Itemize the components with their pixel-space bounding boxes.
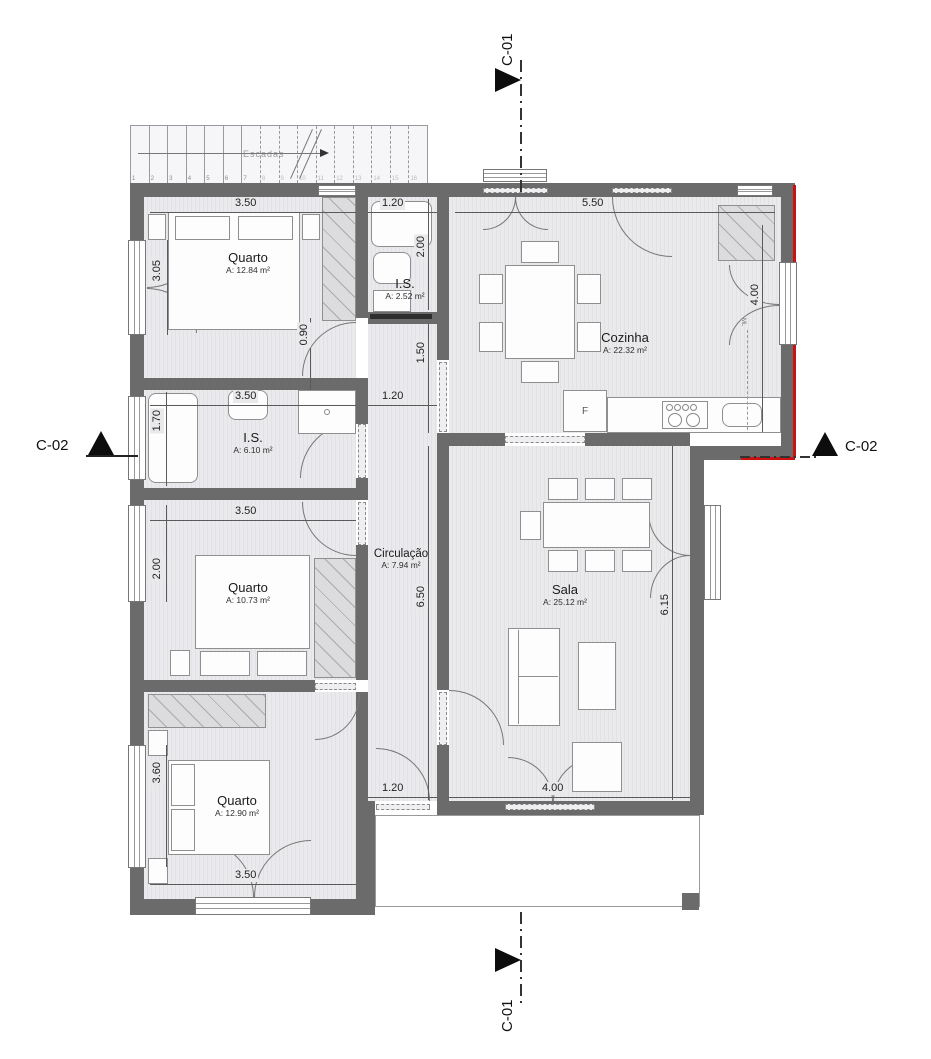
label-quarto2: Quarto A: 10.73 m²: [188, 580, 308, 605]
room-name: Cozinha: [565, 330, 685, 345]
stair-tread: 3: [167, 126, 186, 183]
pillow: [200, 651, 250, 676]
threshold-sala-terrace: [505, 804, 595, 810]
opening-cozinha-sala: [505, 436, 585, 443]
bathtub-is2: [148, 393, 198, 483]
section-arrow-c02-left: [88, 431, 114, 455]
dim-quarto2-window: 2.00: [150, 556, 164, 581]
room-name: Quarto: [188, 250, 308, 265]
dim-line: [150, 405, 356, 406]
chair: [548, 478, 578, 500]
room-area: A: 12.84 m²: [188, 265, 308, 275]
fridge-label: F: [582, 406, 588, 417]
dim-line: [166, 745, 167, 867]
wardrobe-quarto1: [322, 197, 356, 321]
terrace-column: [682, 893, 699, 910]
label-quarto1: Quarto A: 12.84 m²: [188, 250, 308, 275]
pillow: [257, 651, 307, 676]
nightstand: [302, 214, 320, 240]
dim-line: [455, 212, 775, 213]
kitchen-cabinet: [718, 205, 775, 261]
room-area: A: 10.73 m²: [188, 595, 308, 605]
window-quarto1: [128, 240, 146, 335]
section-label-c02-left: C-02: [36, 437, 69, 454]
room-name: I.S.: [375, 276, 435, 291]
dim-quarto2-width: 3.50: [233, 505, 258, 518]
dim-is1-width: 1.20: [380, 197, 405, 210]
section-label-c01-bottom: C-01: [499, 980, 516, 1032]
dim-is2-width: 3.50: [233, 390, 258, 403]
nightstand: [148, 214, 166, 240]
chair: [577, 274, 601, 304]
stair-tread: 16: [408, 126, 427, 183]
section-arrow-c02-right: [812, 432, 838, 456]
threshold-entry-double-door: [483, 188, 548, 193]
wall-hall-sala-b: [437, 745, 449, 801]
wall-quarto1-is2: [130, 378, 368, 390]
dim-line: [150, 520, 356, 521]
wall-quarto2-quarto3: [130, 680, 315, 692]
window-cozinha: [779, 262, 797, 345]
kitchen-sink: [722, 403, 762, 427]
terrace: [375, 815, 700, 907]
stair-tread: 1: [131, 126, 149, 183]
dim-is2-window: 1.70: [150, 408, 164, 433]
room-area: A: 2.52 m²: [375, 291, 435, 301]
section-line-c02-left: [86, 455, 138, 457]
dim-hall-length: 6.50: [414, 584, 428, 609]
nightstand: [148, 730, 168, 756]
washing-machine-label: ML: [740, 318, 746, 326]
dim-line: [368, 405, 437, 406]
burner-dot: [682, 404, 689, 411]
label-is2: I.S. A: 6.10 m²: [208, 430, 298, 455]
sofa-cushion-line: [518, 676, 558, 677]
stair-tread: 12: [334, 126, 353, 183]
floor-plan-canvas: 12345678910111213141516 Escadas: [0, 0, 931, 1059]
sofa: [508, 628, 560, 726]
threshold-hall-exit: [376, 804, 430, 810]
dim-quarto3-width: 3.50: [233, 869, 258, 882]
stairs-label: Escadas: [243, 149, 285, 159]
sofa-back-line: [518, 630, 519, 724]
label-cozinha: Cozinha A: 22.32 m²: [565, 330, 685, 355]
wall-quarto1-is1: [356, 197, 368, 318]
section-line-c02-right: [740, 456, 816, 458]
counter-dashed-line: [747, 330, 749, 430]
stair-tread: 13: [353, 126, 372, 183]
wall-exterior-top: [130, 183, 795, 197]
wardrobe-quarto3: [148, 694, 266, 728]
chair: [479, 274, 503, 304]
room-name: Circulação: [354, 548, 448, 560]
chair: [622, 550, 652, 572]
wall-sala-right: [690, 446, 704, 815]
burner-large: [686, 413, 700, 427]
dim-line: [167, 240, 168, 335]
dining-table-sala: [543, 502, 650, 548]
opening-hall-cozinha: [439, 362, 447, 432]
nightstand: [170, 650, 190, 676]
dim-hall-exit: 1.20: [380, 782, 405, 795]
chair: [548, 550, 578, 572]
window-quarto3: [128, 745, 146, 868]
wall-quarto3-hall: [356, 692, 368, 801]
room-name: Quarto: [177, 793, 297, 808]
dim-quarto3-window: 3.60: [150, 760, 164, 785]
window-top-wardrobe: [318, 185, 356, 196]
chair: [585, 478, 615, 500]
wall-quarto3-porch: [356, 801, 375, 899]
label-sala: Sala A: 25.12 m²: [515, 582, 615, 607]
threshold-quarto2-door: [358, 502, 366, 545]
dim-line: [150, 884, 356, 885]
threshold-quarto3-door: [315, 683, 356, 690]
dim-cozinha-window: 4.00: [748, 282, 762, 307]
french-door-sala-right: [704, 505, 721, 600]
burner-dot: [674, 404, 681, 411]
stair-tread: 2: [149, 126, 168, 183]
room-name: I.S.: [208, 430, 298, 445]
burner-large: [668, 413, 682, 427]
wall-cozinha-sala-b: [585, 433, 690, 446]
dim-cozinha-width: 5.50: [580, 197, 605, 210]
french-door-quarto3: [195, 897, 311, 915]
dim-line: [166, 392, 167, 486]
wall-is2-hall-a: [356, 390, 368, 424]
wardrobe-quarto2: [314, 558, 356, 678]
dim-line: [166, 505, 167, 602]
stair-tread: 15: [390, 126, 409, 183]
burner-dot: [690, 404, 697, 411]
room-area: A: 25.12 m²: [515, 597, 615, 607]
dim-line: [428, 446, 429, 800]
dim-line: [428, 324, 429, 433]
threshold-is2-door: [358, 424, 366, 478]
dim-hall-150: 1.50: [414, 340, 428, 365]
threshold-sala-door: [439, 692, 447, 745]
burner-dot: [666, 404, 673, 411]
wall-cozinha-sala-a: [449, 433, 505, 446]
section-label-c02-right: C-02: [845, 438, 878, 455]
window-top-cozinha: [737, 185, 773, 196]
threshold-kitchen-door: [612, 188, 672, 193]
dim-line: [150, 212, 356, 213]
room-name: Sala: [515, 582, 615, 597]
dim-sala-door: 4.00: [540, 782, 565, 795]
stairs-direction-arrow: [138, 153, 320, 154]
chair: [585, 550, 615, 572]
section-label-c01-top: C-01: [499, 14, 516, 66]
dim-is2-door: 1.20: [380, 390, 405, 403]
stair-tread: 14: [371, 126, 390, 183]
dim-line: [368, 797, 437, 798]
label-quarto3: Quarto A: 12.90 m²: [177, 793, 297, 818]
wall-hall-cozinha: [437, 324, 449, 360]
entry-threshold: [483, 169, 547, 182]
tv-cabinet: [572, 742, 622, 792]
stair-tread: 5: [204, 126, 223, 183]
chair: [479, 322, 503, 352]
dim-sala-depth: 6.15: [658, 592, 672, 617]
room-area: A: 12.90 m²: [177, 808, 297, 818]
chair: [622, 478, 652, 500]
dim-quarto1-width: 3.50: [233, 197, 258, 210]
pillow: [175, 216, 230, 240]
dim-hall-090: 0.90: [297, 322, 311, 347]
chair: [521, 361, 559, 383]
dim-line: [762, 225, 763, 432]
wall-is2-quarto2: [130, 488, 368, 500]
dim-line: [449, 797, 690, 798]
is1-door-sill: [370, 314, 432, 319]
section-arrow-c01-bottom: [495, 948, 521, 972]
wall-is1-cozinha: [437, 197, 449, 324]
stair-tread: 4: [186, 126, 205, 183]
chair: [520, 511, 541, 540]
dim-line: [368, 212, 437, 213]
dim-quarto1-window: 3.05: [150, 258, 164, 283]
window-quarto2: [128, 505, 146, 602]
section-arrow-c01-top: [495, 68, 521, 92]
room-name: Quarto: [188, 580, 308, 595]
armchair: [578, 642, 616, 710]
dim-is1-depth: 2.00: [414, 234, 428, 259]
stair-tread: 6: [223, 126, 242, 183]
room-area: A: 7.94 m²: [354, 560, 448, 570]
faucet-dot: [324, 409, 330, 415]
window-is2: [128, 396, 146, 480]
room-area: A: 6.10 m²: [208, 445, 298, 455]
nightstand: [148, 858, 168, 884]
label-is1: I.S. A: 2.52 m²: [375, 276, 435, 301]
room-area: A: 22.32 m²: [565, 345, 685, 355]
fridge: F: [563, 390, 607, 432]
label-circulacao: Circulação A: 7.94 m²: [354, 548, 448, 570]
dim-line: [672, 446, 673, 800]
chair: [521, 241, 559, 263]
pillow: [238, 216, 293, 240]
